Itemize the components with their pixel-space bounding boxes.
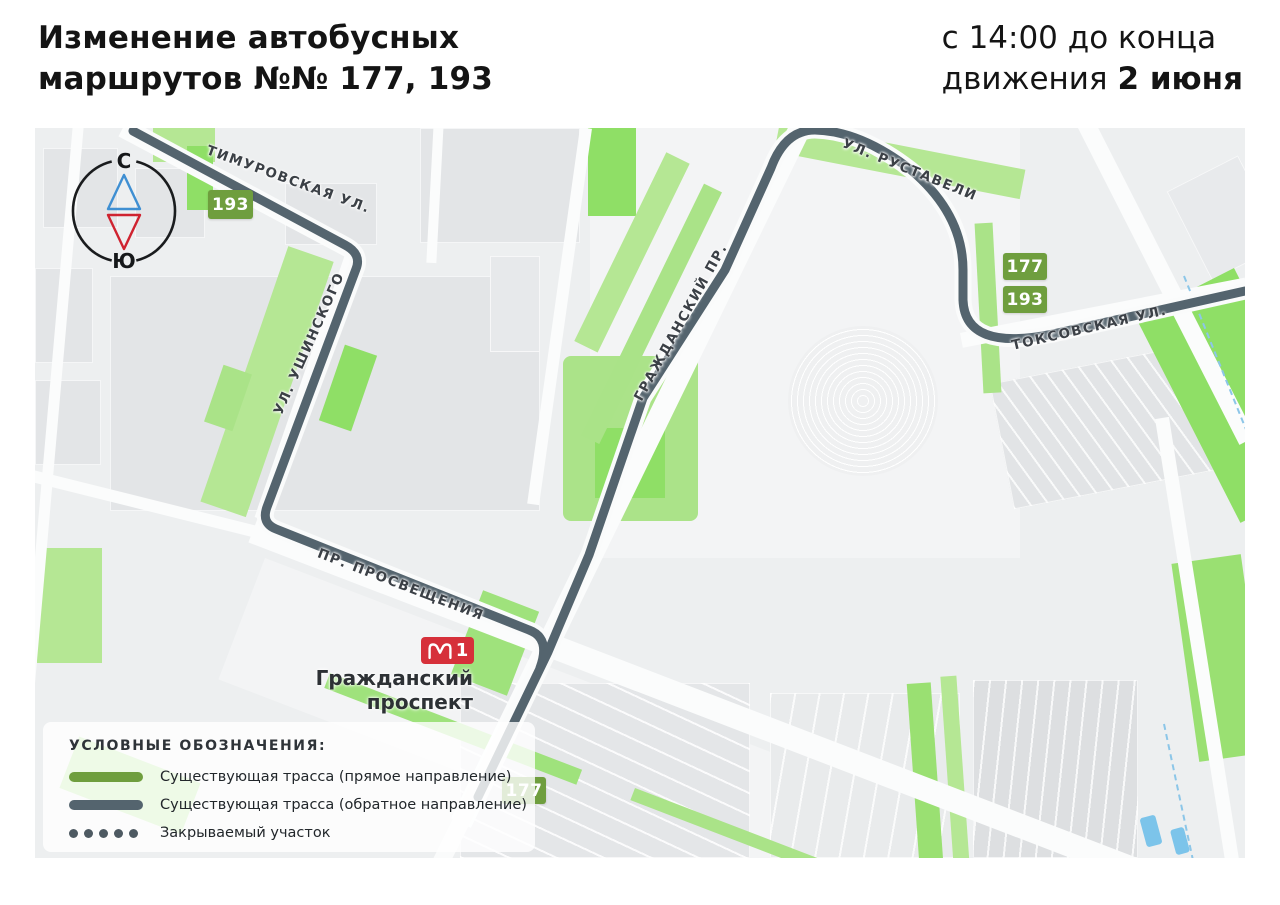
metro-station-name-line2: проспект	[295, 690, 473, 714]
schedule-date: 2 июня	[1117, 61, 1243, 97]
legend: УСЛОВНЫЕ ОБОЗНАЧЕНИЯ: Существующая трасс…	[43, 722, 535, 852]
compass-north-label: С	[117, 149, 132, 173]
compass-north-triangle-icon	[108, 175, 140, 209]
legend-dot-icon	[114, 829, 123, 838]
metro-badge: 1	[421, 637, 474, 664]
metro-station-name: Гражданский проспект	[295, 666, 473, 714]
compass: С Ю	[44, 131, 204, 291]
legend-title: УСЛОВНЫЕ ОБОЗНАЧЕНИЯ:	[69, 738, 326, 754]
street-under-route	[478, 130, 1245, 797]
infographic-page: Изменение автобусных маршрутов №№ 177, 1…	[0, 0, 1280, 905]
legend-dot-icon	[84, 829, 93, 838]
compass-south-triangle-icon	[108, 215, 140, 249]
legend-dot-icon	[129, 829, 138, 838]
legend-label-forward: Существующая трасса (прямое направление)	[160, 769, 511, 785]
legend-swatch-forward-line	[69, 772, 143, 782]
page-title-line1: Изменение автобусных	[38, 18, 493, 59]
page-title-line2: маршрутов №№ 177, 193	[38, 59, 493, 100]
metro-line-number: 1	[456, 642, 469, 660]
route-path-reverse-177	[478, 130, 1245, 797]
legend-swatch-reverse-line	[69, 800, 143, 810]
metro-station-name-line1: Гражданский	[295, 666, 473, 690]
route-badge-193-right: 193	[1003, 286, 1047, 313]
legend-item-forward: Существующая трасса (прямое направление)	[69, 765, 511, 789]
legend-dot-icon	[69, 829, 78, 838]
compass-south-label: Ю	[112, 249, 135, 273]
schedule-text: с 14:00 до конца движения 2 июня	[942, 18, 1243, 100]
compass-circle	[136, 162, 175, 261]
legend-item-reverse: Существующая трасса (обратное направлени…	[69, 793, 527, 817]
metro-m-icon	[427, 642, 453, 660]
schedule-line1: с 14:00 до конца	[942, 18, 1243, 59]
page-title: Изменение автобусных маршрутов №№ 177, 1…	[38, 18, 493, 100]
legend-swatch-closed-dots	[69, 829, 143, 838]
map: С Ю ТИМУРОВСКАЯ УЛ. УЛ. УШИНСКОГО ГРАЖДА…	[35, 128, 1245, 858]
legend-item-closed: Закрываемый участок	[69, 821, 330, 845]
compass-circle	[73, 162, 112, 261]
schedule-line2: движения 2 июня	[942, 59, 1243, 100]
legend-dot-icon	[99, 829, 108, 838]
legend-label-closed: Закрываемый участок	[160, 825, 330, 841]
legend-label-reverse: Существующая трасса (обратное направлени…	[160, 797, 527, 813]
route-badge-193-timurovskaya: 193	[208, 190, 253, 219]
route-badge-177-right: 177	[1003, 253, 1047, 280]
schedule-line2-prefix: движения	[942, 61, 1118, 97]
